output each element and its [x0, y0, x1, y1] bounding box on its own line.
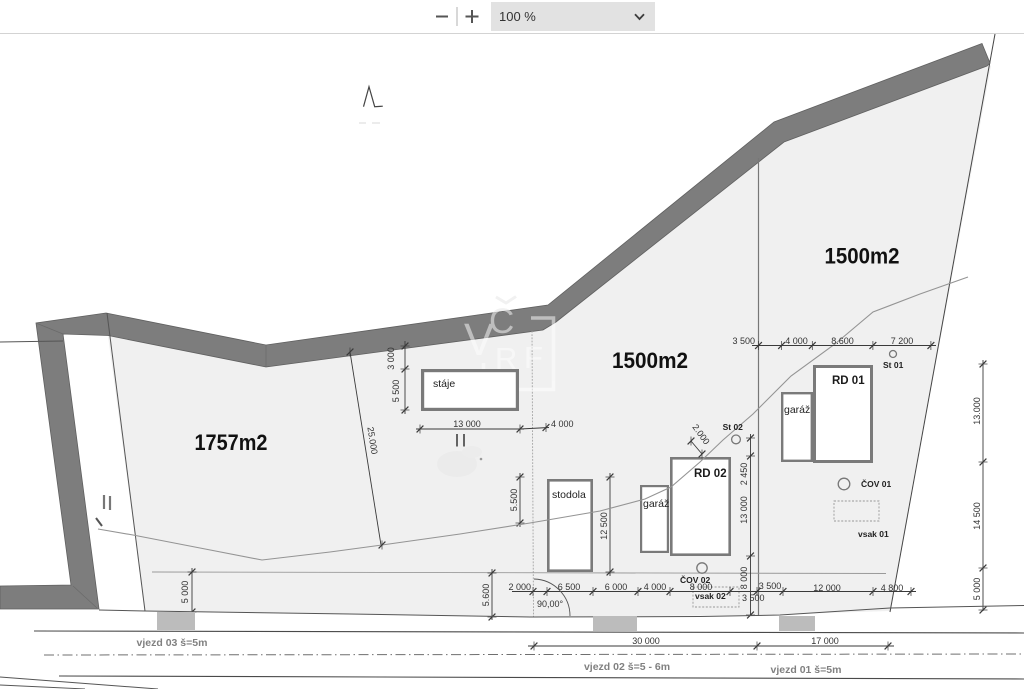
svg-text:8 000: 8 000	[739, 567, 749, 590]
svg-text:RD 01: RD 01	[832, 375, 865, 387]
svg-text:4 000: 4 000	[551, 419, 574, 429]
svg-text:5 500: 5 500	[391, 380, 401, 403]
svg-text:3 500: 3 500	[759, 581, 782, 591]
svg-text:7 200: 7 200	[891, 336, 914, 346]
svg-text:4 000: 4 000	[785, 336, 808, 346]
svg-text:17 000: 17 000	[811, 636, 839, 646]
svg-text:vjezd 02 š=5 - 6m: vjezd 02 š=5 - 6m	[584, 661, 670, 673]
svg-text:vjezd 01 š=5m: vjezd 01 š=5m	[771, 664, 842, 676]
svg-text:8.600: 8.600	[831, 336, 854, 346]
svg-text:30 000: 30 000	[632, 636, 660, 646]
svg-text:2 450: 2 450	[739, 463, 749, 486]
svg-text:St 01: St 01	[883, 360, 904, 370]
svg-text:90,00°: 90,00°	[537, 599, 564, 609]
svg-text:ČOV 01: ČOV 01	[861, 478, 892, 489]
svg-text:14 500: 14 500	[972, 502, 982, 530]
svg-text:stáje: stáje	[433, 378, 455, 390]
svg-text:12 500: 12 500	[599, 512, 609, 540]
svg-text:garáž: garáž	[784, 404, 810, 416]
svg-text:8 000: 8 000	[690, 582, 713, 592]
svg-text:100 %: 100 %	[499, 9, 536, 24]
svg-text:5 000: 5 000	[972, 578, 982, 601]
svg-text:5 000: 5 000	[180, 581, 190, 604]
svg-text:vsak 01: vsak 01	[858, 529, 889, 539]
svg-text:F: F	[524, 340, 543, 375]
svg-text:4 000: 4 000	[644, 582, 667, 592]
svg-text:1757m2: 1757m2	[195, 430, 268, 455]
svg-text:6 500: 6 500	[558, 582, 581, 592]
svg-text:1500m2: 1500m2	[612, 348, 688, 373]
svg-text:stodola: stodola	[552, 489, 586, 501]
svg-text:5.600: 5.600	[481, 584, 491, 607]
svg-text:2 000: 2 000	[508, 582, 531, 592]
svg-text:vjezd 03 š=5m: vjezd 03 š=5m	[137, 637, 208, 649]
svg-text:3 000: 3 000	[386, 347, 396, 370]
svg-text:C: C	[489, 302, 514, 341]
svg-text:St 02: St 02	[723, 422, 744, 432]
svg-text:6 000: 6 000	[605, 582, 628, 592]
svg-text:12 000: 12 000	[813, 583, 841, 593]
svg-text:1500m2: 1500m2	[825, 244, 900, 269]
svg-text:5.500: 5.500	[509, 489, 519, 512]
svg-text:3 500: 3 500	[732, 336, 755, 346]
svg-text:RD 02: RD 02	[694, 468, 727, 480]
svg-text:garáž: garáž	[643, 498, 669, 510]
svg-text:13 000: 13 000	[739, 496, 749, 524]
svg-text:4 800: 4 800	[881, 583, 904, 593]
svg-text:13 000: 13 000	[453, 419, 481, 429]
svg-text:13.000: 13.000	[972, 397, 982, 425]
svg-text:vsak 02: vsak 02	[695, 591, 726, 601]
